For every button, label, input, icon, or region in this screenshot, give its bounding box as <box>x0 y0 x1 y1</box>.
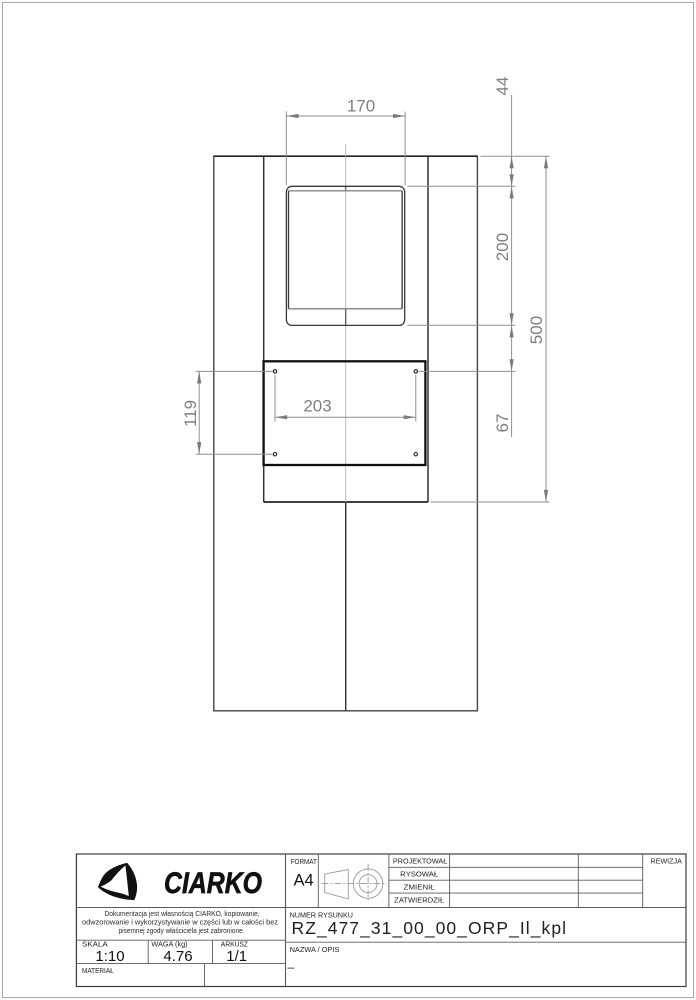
svg-text:1:10: 1:10 <box>95 948 124 965</box>
svg-text:MATERIAŁ: MATERIAŁ <box>82 968 114 975</box>
svg-text:119: 119 <box>181 400 200 427</box>
svg-text:44: 44 <box>493 77 512 96</box>
svg-text:FORMAT: FORMAT <box>291 859 318 866</box>
svg-text:500: 500 <box>527 316 546 344</box>
svg-text:Dokumentacja jest własnością C: Dokumentacja jest własnością CIARKO, kop… <box>105 911 260 918</box>
svg-text:67: 67 <box>493 414 512 433</box>
svg-text:RYSOWAŁ: RYSOWAŁ <box>400 872 438 879</box>
svg-text:RZ_477_31_00_00_ORP_Il_kpl: RZ_477_31_00_00_ORP_Il_kpl <box>292 918 567 939</box>
svg-text:REWIZJA: REWIZJA <box>651 858 683 865</box>
svg-text:200: 200 <box>493 233 512 261</box>
svg-text:odwzorowanie i wykorzystywanie: odwzorowanie i wykorzystywanie w części … <box>82 919 279 926</box>
svg-text:A4: A4 <box>294 872 314 890</box>
svg-text:1/1: 1/1 <box>226 948 247 965</box>
svg-text:ZMIENIŁ: ZMIENIŁ <box>404 884 435 891</box>
svg-text:203: 203 <box>303 397 331 416</box>
svg-text:–: – <box>288 960 295 974</box>
svg-text:PROJEKTOWAŁ: PROJEKTOWAŁ <box>393 858 447 865</box>
svg-text:4.76: 4.76 <box>163 948 192 965</box>
svg-text:CIARKO: CIARKO <box>164 867 262 900</box>
svg-text:170: 170 <box>347 97 375 116</box>
svg-text:pisemnej zgody właściciela jes: pisemnej zgody właściciela jest zabronio… <box>119 928 245 935</box>
svg-text:ZATWIERDZIŁ: ZATWIERDZIŁ <box>394 898 444 905</box>
svg-text:NAZWA / OPIS: NAZWA / OPIS <box>290 945 340 954</box>
